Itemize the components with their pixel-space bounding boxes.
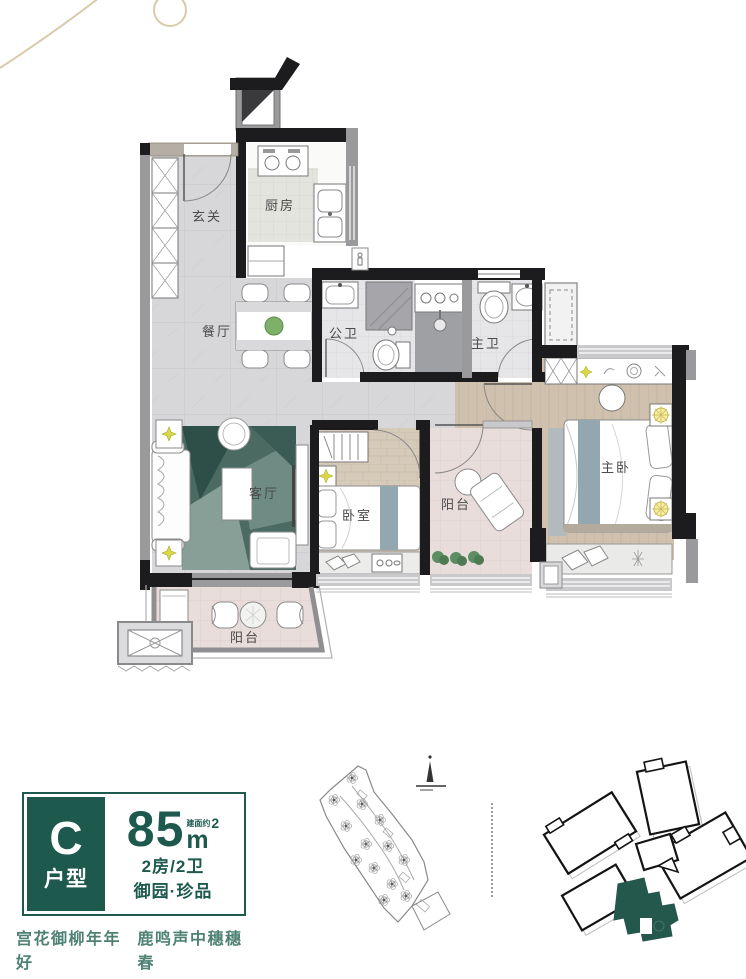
area-value: 85 xyxy=(127,804,185,854)
chair xyxy=(277,602,303,628)
bedroom-window xyxy=(316,574,420,592)
mid-balcony-window xyxy=(430,574,532,592)
rooms-baths-label: 2房/2卫 xyxy=(142,854,205,880)
label-living: 客厅 xyxy=(249,486,279,501)
site-plan xyxy=(300,748,475,943)
slogan-left: 宫花御柳年年好 xyxy=(16,925,125,973)
site-boundary xyxy=(320,766,428,922)
master-bay-window xyxy=(546,578,672,597)
label-dining: 餐厅 xyxy=(202,324,232,339)
coffee-table xyxy=(222,468,252,520)
sofa xyxy=(152,441,190,551)
stool xyxy=(599,385,625,411)
bed-bench xyxy=(564,524,672,532)
label-bedroom: 卧室 xyxy=(342,508,372,523)
kitchen-window xyxy=(346,128,358,246)
entry-wardrobe xyxy=(152,158,178,298)
label-master-bath: 主卫 xyxy=(471,336,501,351)
ac-platform-top xyxy=(545,283,577,347)
area-unit: m xyxy=(186,830,208,850)
decor-gold-arc xyxy=(0,0,104,68)
unit-type-letter-box: C 户型 xyxy=(27,797,105,911)
dotted-separator xyxy=(491,803,493,897)
toilet xyxy=(478,282,510,323)
living-room xyxy=(152,418,308,570)
bay-window-bench xyxy=(546,544,672,574)
unit-notch xyxy=(640,918,652,934)
ac-platform-small xyxy=(540,562,562,588)
floor-plan: 玄关 厨房 餐厅 公卫 主卫 客厅 卧室 阳台 主卧 阳台 xyxy=(0,0,746,700)
plant-table-bottom xyxy=(156,540,182,566)
bedside-rug xyxy=(548,428,566,536)
chair xyxy=(284,350,310,368)
wardrobe xyxy=(545,358,577,384)
table-plant xyxy=(265,317,283,335)
toilet xyxy=(373,340,410,370)
unit-info-panel: 85 建面约 2 m 2房/2卫 御园·珍品 xyxy=(105,797,241,911)
series-label: 御园·珍品 xyxy=(134,879,213,905)
label-kitchen: 厨房 xyxy=(265,198,295,213)
slogan: 宫花御柳年年好 鹿鸣声中穗穗春 xyxy=(16,925,246,973)
north-arrow-icon xyxy=(416,755,446,790)
tv-console xyxy=(296,445,308,545)
tower-top xyxy=(635,754,699,835)
ac-platform-bottom xyxy=(118,622,192,671)
label-master-bedroom: 主卧 xyxy=(601,460,631,475)
unit-type-label: 户型 xyxy=(44,863,88,893)
plant-table-top xyxy=(156,420,182,448)
flue-shaft xyxy=(230,57,300,130)
label-public-bath: 公卫 xyxy=(329,326,359,341)
key-plan xyxy=(540,748,746,960)
label-mid-balcony: 阳台 xyxy=(441,497,471,512)
floorplan-page: 玄关 厨房 餐厅 公卫 主卫 客厅 卧室 阳台 主卧 阳台 C 户型 85 建面… xyxy=(0,0,746,979)
unit-type-badge: C 户型 85 建面约 2 m 2房/2卫 御园·珍品 xyxy=(22,792,246,916)
bay-window-bench xyxy=(316,552,420,574)
master-window-top xyxy=(577,345,675,358)
chair xyxy=(284,284,310,302)
area-superscript: 2 xyxy=(211,816,219,830)
tower-left xyxy=(541,787,640,879)
chair xyxy=(242,350,268,368)
unit-type-letter: C xyxy=(49,815,82,861)
label-bottom-balcony: 阳台 xyxy=(230,630,260,645)
chair xyxy=(242,284,268,302)
nightstand-bottom xyxy=(650,498,672,520)
slogan-right: 鹿鸣声中穗穗春 xyxy=(138,925,247,973)
label-entry: 玄关 xyxy=(192,209,222,224)
highlighted-unit xyxy=(614,878,678,941)
niche xyxy=(352,248,368,270)
decor-gold-circle xyxy=(154,0,186,26)
area-row: 85 建面约 2 m xyxy=(127,804,219,854)
faucet-icon xyxy=(434,319,446,331)
chair xyxy=(212,602,238,628)
tv xyxy=(292,465,295,527)
nightstand-top xyxy=(650,404,672,426)
